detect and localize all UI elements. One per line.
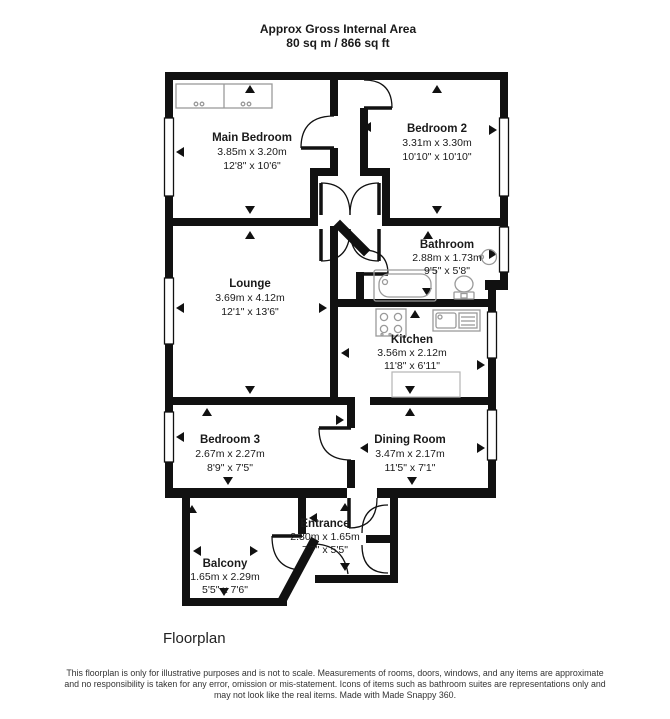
wall-segment	[390, 498, 398, 583]
room-main-bedroom: Main Bedroom 3.85m x 3.20m 12'8" x 10'6"	[212, 132, 292, 172]
wall-segment	[356, 272, 364, 299]
wall-segment	[315, 575, 390, 583]
measure-arrow	[410, 310, 420, 318]
measure-arrow	[407, 477, 417, 485]
room-dimensions-imperial: 11'8" x 6'11"	[384, 360, 440, 372]
measure-arrow	[193, 546, 201, 556]
room-bedroom-2: Bedroom 2 3.31m x 3.30m 10'10" x 10'10"	[402, 123, 472, 163]
room-name: Bedroom 3	[200, 434, 260, 446]
room-dimensions-metric: 3.31m x 3.30m	[402, 137, 472, 149]
room-kitchen: Kitchen 3.56m x 2.12m 11'8" x 6'11"	[377, 334, 447, 372]
wall-segment	[310, 168, 318, 218]
room-dining-room: Dining Room 3.47m x 2.17m 11'5" x 7'1"	[374, 434, 446, 474]
measure-arrow	[176, 303, 184, 313]
floorplan-caption: Floorplan	[163, 630, 226, 647]
room-dimensions-metric: 2.67m x 2.27m	[195, 448, 265, 460]
measure-arrow	[432, 85, 442, 93]
room-name: Lounge	[229, 278, 271, 290]
door-arc	[362, 545, 388, 573]
room-dimensions-metric: 1.65m x 2.29m	[190, 571, 260, 583]
room-dimensions-imperial: 8'9" x 7'5"	[207, 462, 253, 474]
room-dimensions-metric: 3.47m x 2.17m	[375, 448, 445, 460]
measure-arrow	[202, 408, 212, 416]
room-entrance: Entrance 2.30m x 1.65m 7'7" x 5'5"	[290, 518, 360, 556]
wall-diagonal	[340, 226, 364, 250]
wall-segment	[366, 535, 390, 543]
disclaimer-line2: and no responsibility is taken for any e…	[64, 679, 605, 689]
measure-arrow	[405, 386, 415, 394]
room-dimensions-imperial: 12'1" x 13'6"	[221, 306, 279, 318]
room-name: Main Bedroom	[212, 132, 292, 144]
room-bedroom-3: Bedroom 3 2.67m x 2.27m 8'9" x 7'5"	[195, 434, 265, 474]
room-dimensions-imperial: 9'5" x 5'8"	[424, 265, 470, 277]
window	[488, 312, 497, 358]
basin-icon	[480, 250, 497, 265]
window	[165, 412, 174, 462]
disclaimer-line1: This floorplan is only for illustrative …	[66, 668, 603, 678]
door-arc	[362, 505, 388, 533]
wall-segment	[165, 488, 347, 498]
window	[488, 410, 497, 460]
wall-segment	[165, 218, 318, 226]
measure-arrow	[176, 432, 184, 442]
wall-segment	[347, 405, 355, 428]
wall-segment	[382, 218, 508, 226]
door-arc	[350, 183, 379, 215]
window	[500, 118, 509, 196]
room-dimensions-imperial: 11'5" x 7'1"	[385, 462, 436, 474]
room-lounge: Lounge 3.69m x 4.12m 12'1" x 13'6"	[215, 278, 285, 318]
worktop-outline	[392, 372, 460, 397]
measure-arrow	[405, 408, 415, 416]
room-name: Dining Room	[374, 434, 446, 446]
wall-segment	[338, 299, 488, 307]
room-dimensions-metric: 3.69m x 4.12m	[215, 292, 285, 304]
measure-arrow	[477, 443, 485, 453]
window	[500, 227, 509, 272]
measure-arrow	[176, 147, 184, 157]
wall-segment	[377, 488, 496, 498]
measure-arrow	[336, 415, 344, 425]
wall-segment	[330, 226, 338, 397]
floorplan-page: Approx Gross Internal Area 80 sq m / 866…	[0, 0, 670, 719]
wardrobe-icon	[176, 84, 272, 108]
floorplan-canvas: Approx Gross Internal Area 80 sq m / 866…	[0, 0, 670, 719]
kitchen-sink-icon	[433, 310, 480, 331]
room-dimensions-metric: 2.30m x 1.65m	[290, 531, 360, 543]
room-dimensions-imperial: 10'10" x 10'10"	[402, 151, 472, 163]
stove-icon	[376, 309, 406, 336]
measure-arrow	[245, 231, 255, 239]
measure-arrow	[250, 546, 258, 556]
measure-arrow	[341, 348, 349, 358]
measure-arrow	[432, 206, 442, 214]
wall-segment	[165, 397, 355, 405]
door-arc	[301, 116, 334, 148]
room-name: Bathroom	[420, 239, 474, 251]
measure-arrow	[245, 85, 255, 93]
measure-arrow	[489, 125, 497, 135]
wall-segment	[182, 598, 287, 606]
wall-segment	[330, 80, 338, 116]
measure-arrow	[477, 360, 485, 370]
measure-arrow	[245, 206, 255, 214]
door-arc	[364, 80, 392, 108]
room-name: Bedroom 2	[407, 123, 467, 135]
measure-arrow	[223, 477, 233, 485]
room-dimensions-metric: 3.85m x 3.20m	[217, 146, 287, 158]
room-dimensions-metric: 3.56m x 2.12m	[377, 347, 447, 359]
wall-segment	[165, 72, 508, 80]
room-dimensions-imperial: 5'5" x 7'6"	[202, 584, 248, 596]
disclaimer: This floorplan is only for illustrative …	[64, 668, 605, 700]
measure-arrow	[319, 303, 327, 313]
measure-arrow	[423, 231, 433, 239]
room-name: Balcony	[203, 558, 248, 570]
room-dimensions-imperial: 12'8" x 10'6"	[223, 160, 281, 172]
door-arc	[321, 183, 350, 215]
header-line2: 80 sq m / 866 sq ft	[286, 36, 389, 50]
room-name: Entrance	[300, 518, 349, 530]
disclaimer-line3: may not look like the real items. Made w…	[214, 690, 456, 700]
door-arc	[319, 428, 351, 460]
wall-segment	[382, 168, 390, 218]
wall-segment	[347, 460, 355, 488]
wall-segment	[360, 108, 368, 176]
room-dimensions-metric: 2.88m x 1.73m	[412, 252, 482, 264]
room-bathroom: Bathroom 2.88m x 1.73m 9'5" x 5'8"	[412, 239, 482, 277]
measure-arrow	[340, 563, 350, 571]
wall-segment	[370, 397, 496, 405]
header-line1: Approx Gross Internal Area	[260, 22, 417, 36]
window	[165, 278, 174, 344]
room-dimensions-imperial: 7'7" x 5'5"	[302, 544, 348, 556]
room-balcony: Balcony 1.65m x 2.29m 5'5" x 7'6"	[190, 558, 260, 596]
toilet-icon	[454, 276, 474, 299]
measure-arrow	[360, 443, 368, 453]
measure-arrow	[245, 386, 255, 394]
room-name: Kitchen	[391, 334, 433, 346]
window	[165, 118, 174, 196]
